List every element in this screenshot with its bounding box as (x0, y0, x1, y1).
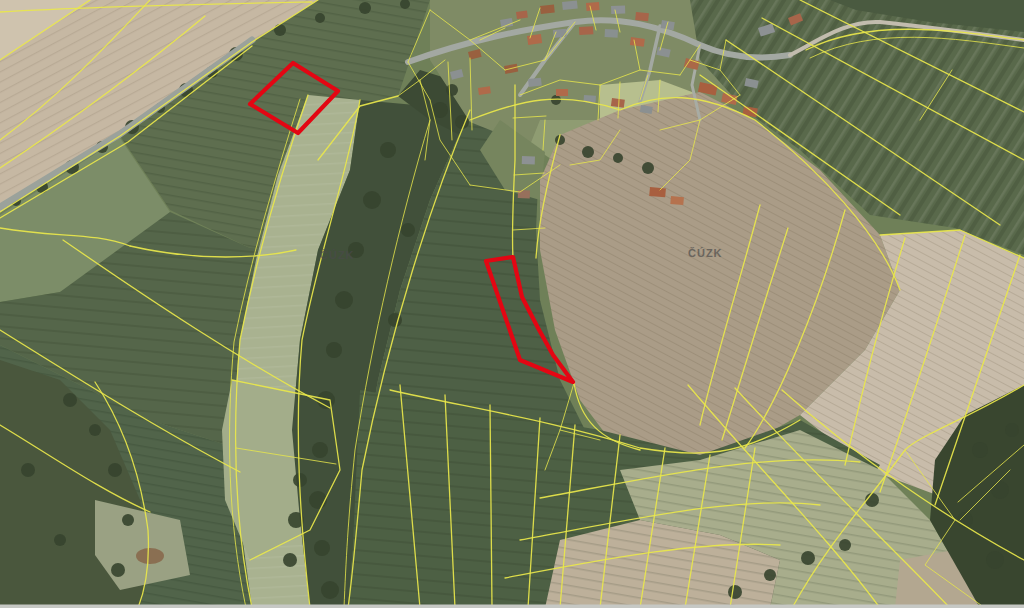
viewport-edge-bar (0, 605, 1024, 608)
terrain-fields (0, 0, 1024, 608)
cuzk-watermark-2: ČÚZK (688, 247, 723, 259)
cuzk-watermark-1: ČÚZK (320, 249, 355, 261)
orthophoto-cadastral-map[interactable]: ČÚZK ČÚZK (0, 0, 1024, 608)
map-canvas[interactable]: ČÚZK ČÚZK (0, 0, 1024, 608)
